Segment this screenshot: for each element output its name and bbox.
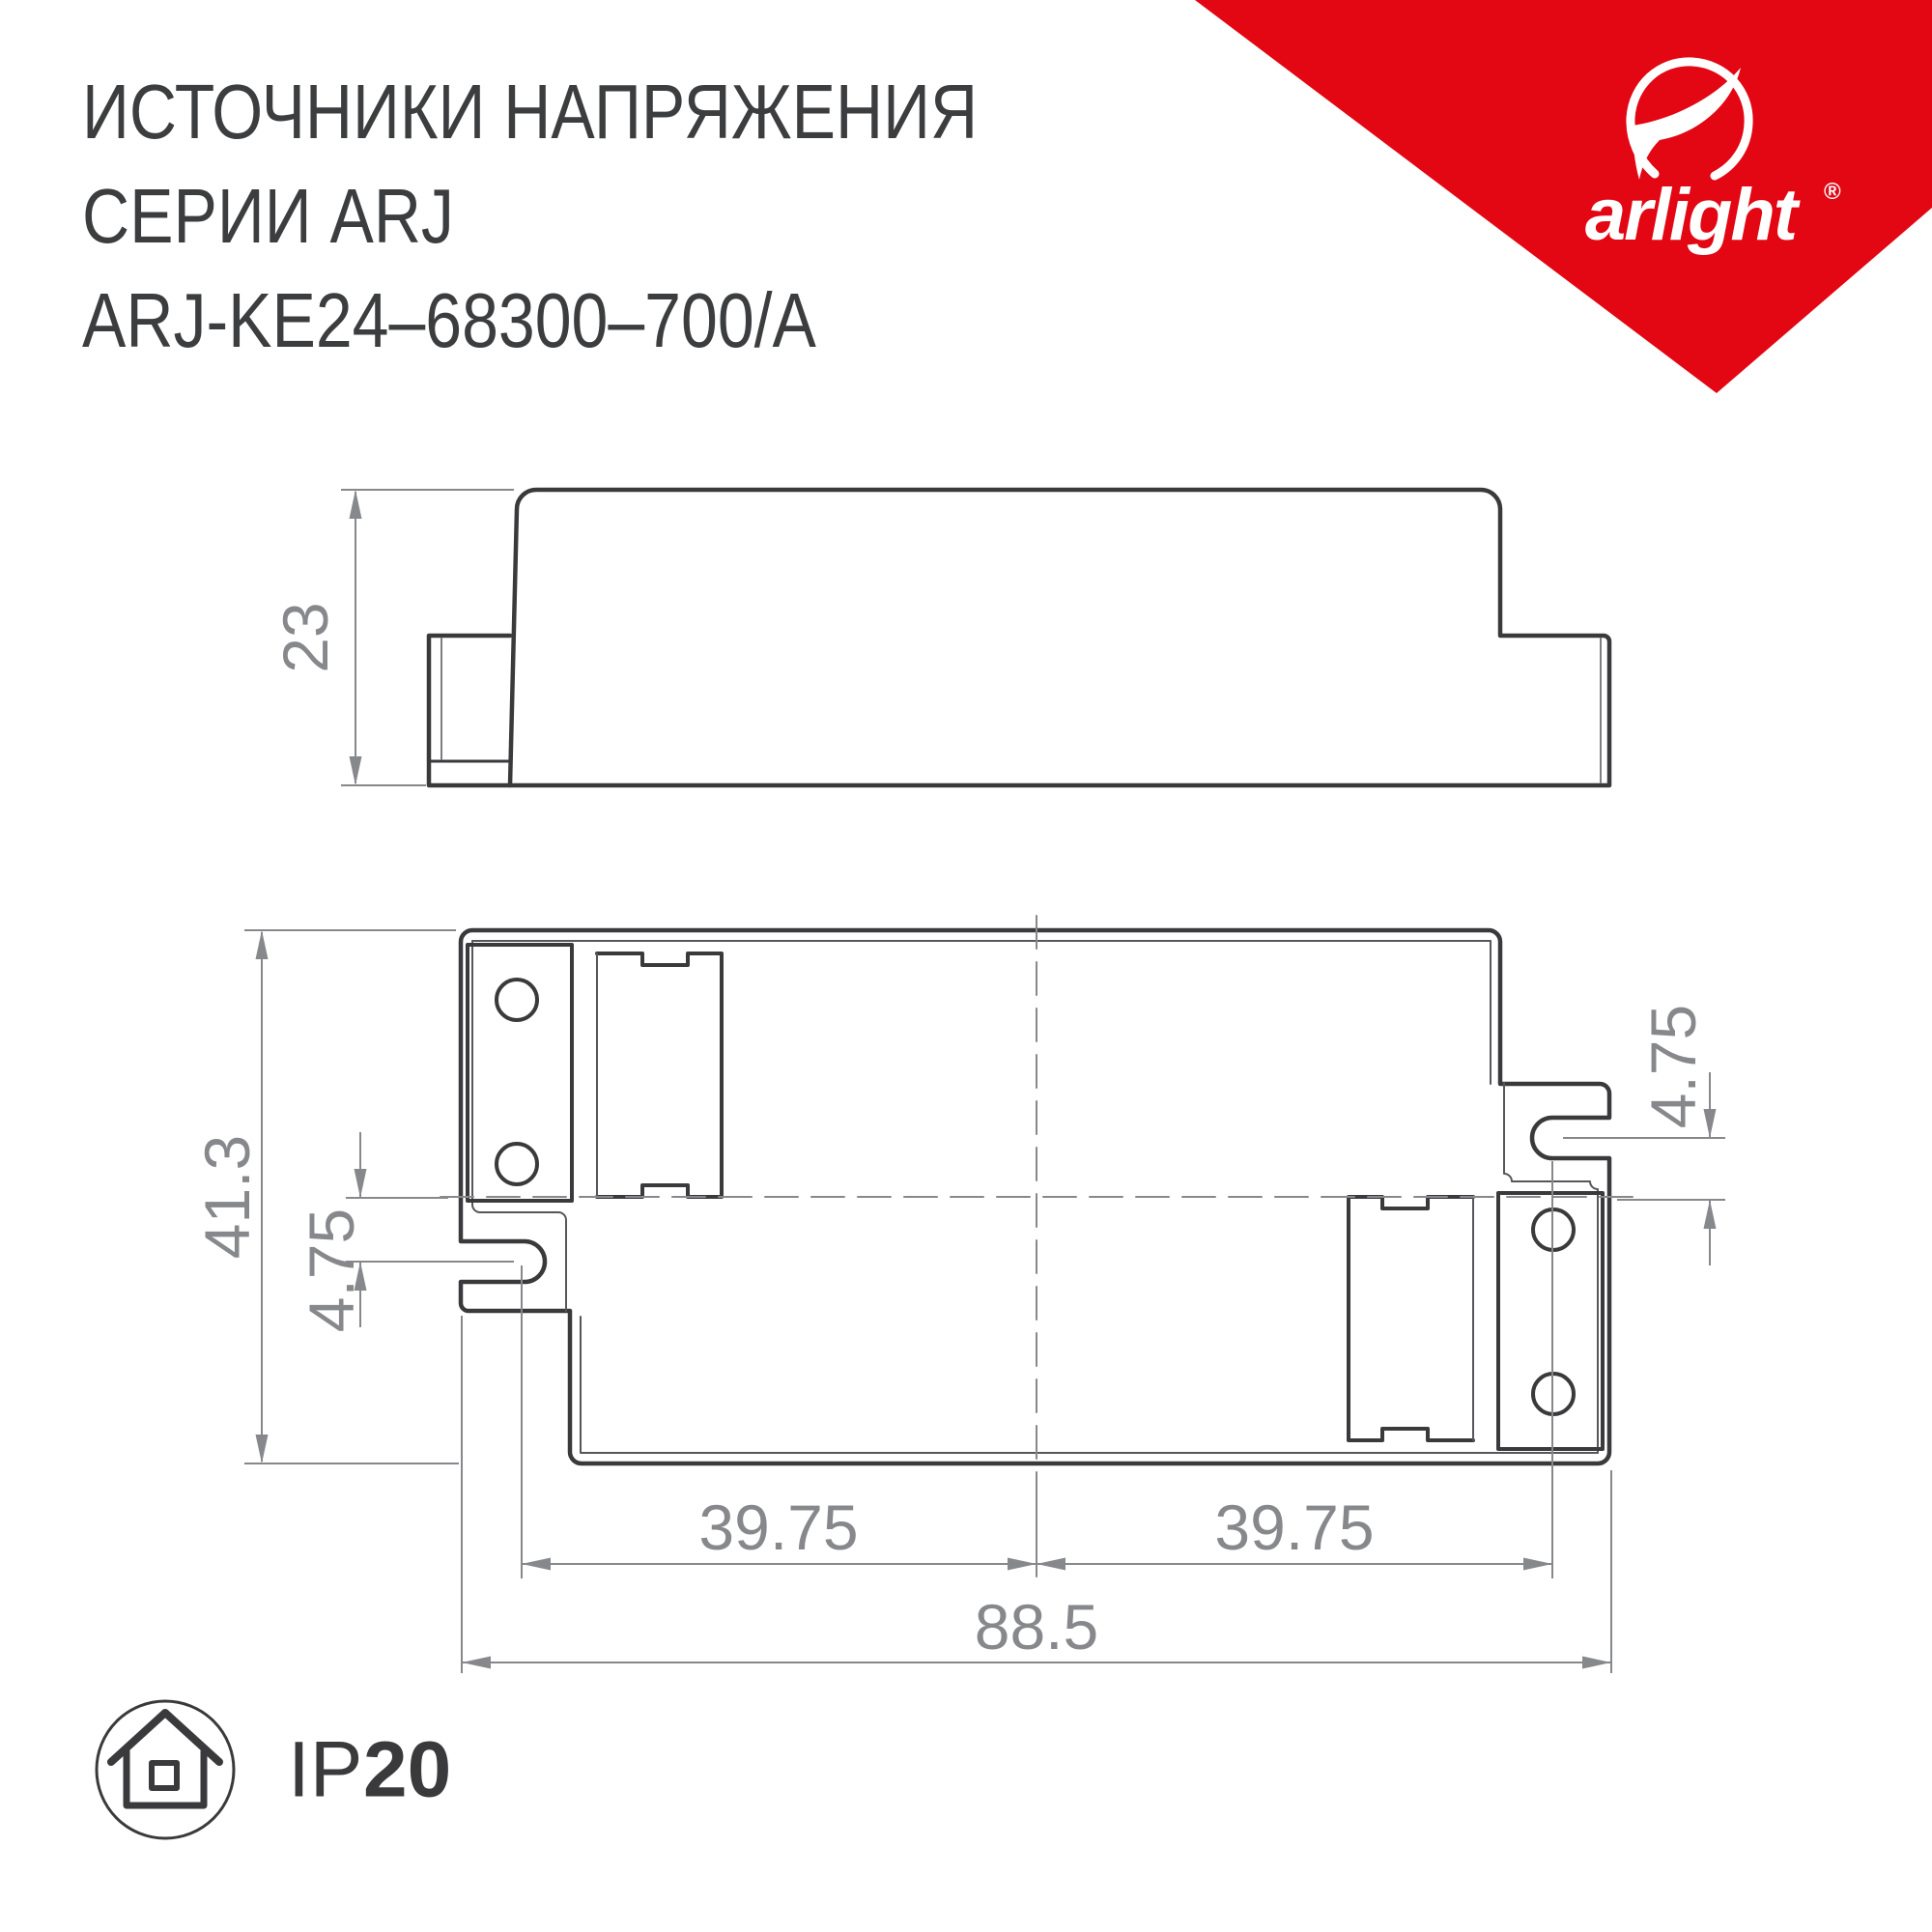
side-view-case-outline xyxy=(510,490,1609,785)
dim-label-hole-spacing-right: 39.75 xyxy=(1214,1492,1374,1563)
terminal-block-left xyxy=(468,945,572,1201)
dim-label-side-height: 23 xyxy=(270,602,341,672)
ip-value-label: 20 xyxy=(363,1726,451,1814)
terminal-block-right xyxy=(1498,1193,1603,1449)
dim-label-hole-spacing-left: 39.75 xyxy=(698,1492,858,1563)
ip-prefix-label: IP xyxy=(288,1726,362,1814)
inner-left-step xyxy=(472,941,566,1311)
ip-rating-badge: IP 20 xyxy=(97,1701,451,1838)
screw-hole xyxy=(497,980,537,1020)
logo-wordmark: arlight xyxy=(1585,174,1801,256)
brand-triangle xyxy=(1195,0,1932,393)
component-block-left-outline xyxy=(597,953,722,1197)
top-view-drawing xyxy=(440,916,1633,1577)
dim-label-overall-width: 88.5 xyxy=(975,1591,1098,1662)
terminal-block-right-outline xyxy=(1498,1193,1603,1449)
component-block-left xyxy=(597,953,722,1197)
dim-label-overall-height: 41.3 xyxy=(191,1135,263,1259)
dim-label-slot-offset-left: 4.75 xyxy=(296,1208,367,1332)
technical-drawing-canvas: arlight ® 23 xyxy=(0,0,1932,1932)
centerlines xyxy=(440,916,1633,1577)
brand-corner: arlight ® xyxy=(1195,0,1932,393)
badge-circle xyxy=(97,1701,234,1838)
component-block-right xyxy=(1349,1197,1473,1440)
datasheet-page: ИСТОЧНИКИ НАПРЯЖЕНИЯ СЕРИИ ARJ ARJ-KE24–… xyxy=(0,0,1932,1932)
logo-registered-mark: ® xyxy=(1824,179,1841,205)
dim-label-slot-offset-right: 4.75 xyxy=(1637,1005,1709,1128)
component-block-right-outline xyxy=(1349,1197,1473,1440)
screw-hole xyxy=(497,1144,537,1184)
side-view-drawing xyxy=(429,490,1609,785)
terminal-block-left-outline xyxy=(468,945,572,1201)
house-in-circle-icon xyxy=(111,1713,219,1805)
